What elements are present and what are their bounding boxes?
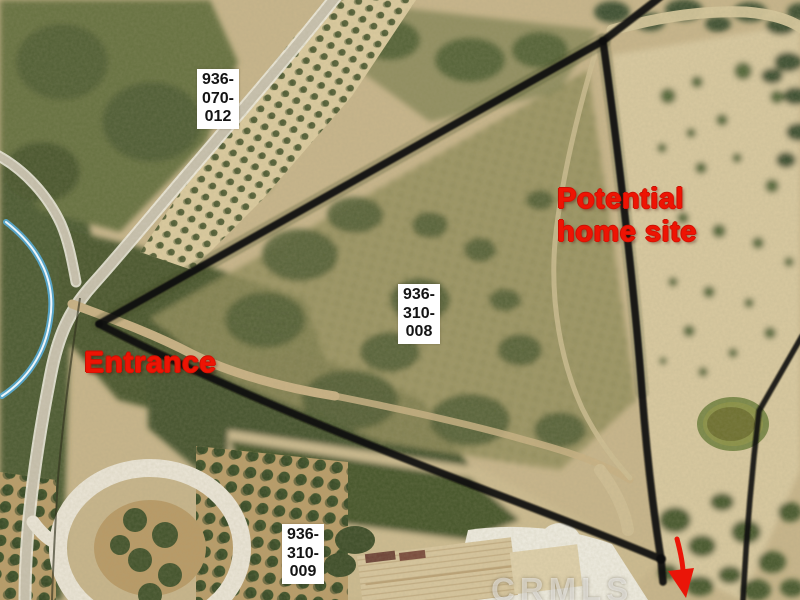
mls-watermark: CRMLS bbox=[491, 571, 633, 600]
parcel-label-936-310-009: 936- 310- 009 bbox=[282, 524, 324, 584]
entrance-label: Entrance bbox=[84, 347, 216, 379]
parcel-label-936-070-012: 936- 070- 012 bbox=[197, 69, 239, 129]
potential-home-site-label: Potential home site bbox=[557, 183, 697, 249]
parcel-label-936-310-008: 936- 310- 008 bbox=[398, 284, 440, 344]
aerial-parcel-map: 936- 070- 012 936- 310- 008 936- 310- 00… bbox=[0, 0, 800, 600]
